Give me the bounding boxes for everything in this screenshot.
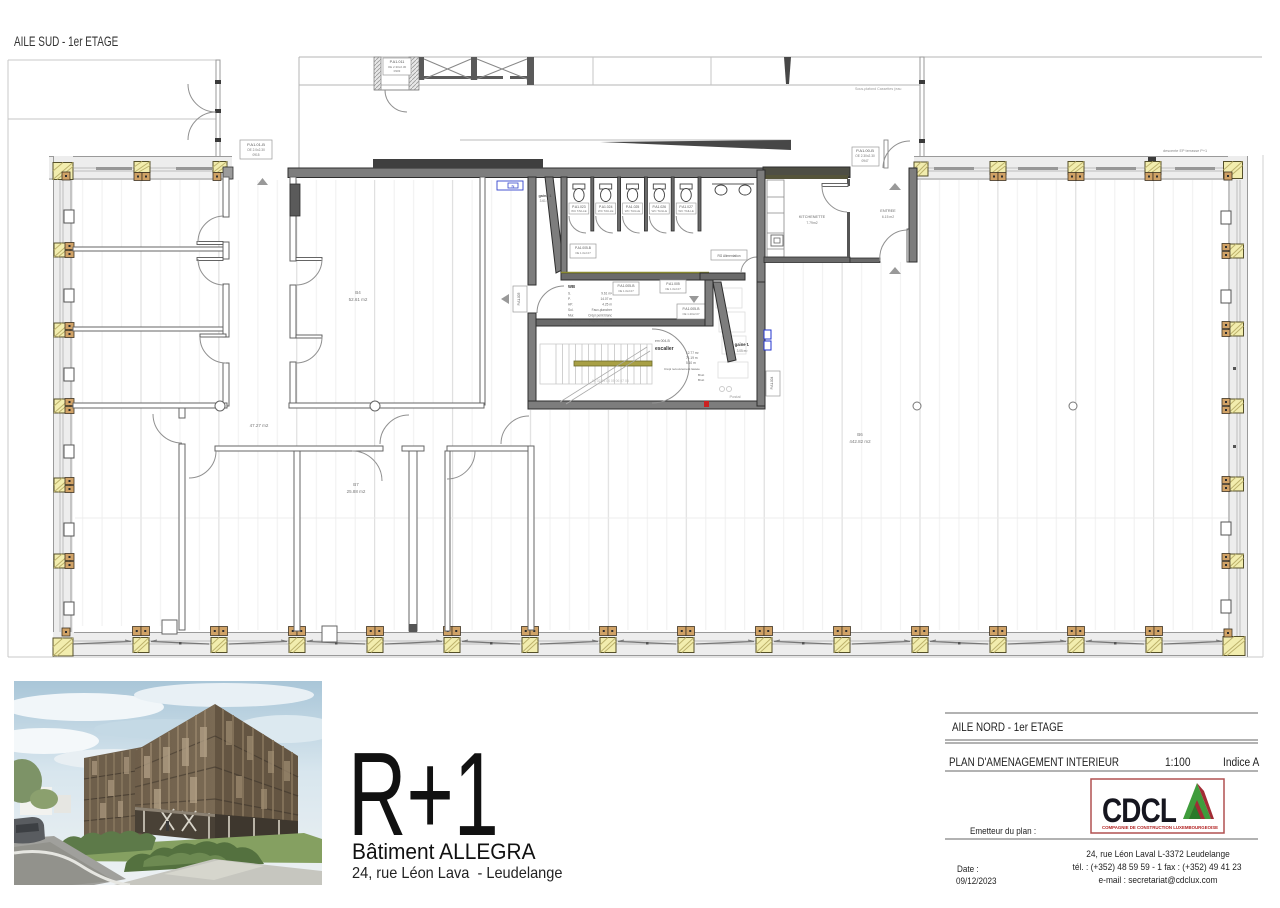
svg-text:442.82 m2: 442.82 m2 — [849, 439, 871, 444]
svg-text:Mur.: Mur. — [568, 314, 574, 318]
svg-text:descente EP terrasse P+1: descente EP terrasse P+1 — [1163, 149, 1207, 153]
svg-text:0947: 0947 — [861, 159, 868, 163]
svg-text:3.05 m²: 3.05 m² — [737, 349, 748, 353]
svg-text:HP.: HP. — [568, 303, 573, 307]
svg-text:Crépi recouvrement lassée: Crépi recouvrement lassée — [664, 367, 700, 371]
svg-text:Sous-plafond Cassettes (eau: Sous-plafond Cassettes (eau — [855, 87, 901, 91]
svg-text:Postal: Postal — [729, 394, 740, 399]
svg-text:P.A1.011: P.A1.011 — [390, 60, 405, 64]
svg-text:0903: 0903 — [394, 69, 401, 73]
svg-text:Date :: Date : — [957, 864, 979, 875]
svg-text:24, rue Léon Laval L-3372 Leud: 24, rue Léon Laval L-3372 Leudelange — [1086, 849, 1229, 860]
svg-text:OE 1.0x2.07: OE 1.0x2.07 — [618, 289, 634, 293]
svg-text:71.19 m: 71.19 m — [686, 356, 698, 360]
svg-text:RG Alimentation: RG Alimentation — [717, 254, 740, 258]
svg-text:OE 1.0x2.07: OE 1.0x2.07 — [575, 251, 591, 255]
svg-text:escalier: escalier — [655, 346, 674, 352]
svg-text:ENTREE: ENTREE — [880, 209, 896, 213]
svg-text:OE 1.20x2.07: OE 1.20x2.07 — [682, 312, 700, 316]
svg-text:25.88 m2: 25.88 m2 — [347, 489, 366, 494]
svg-text:HS. 2.70: HS. 2.70 — [568, 319, 581, 323]
svg-text:P.A1.005-B: P.A1.005-B — [618, 284, 636, 288]
svg-text:S.: S. — [568, 292, 571, 296]
svg-text:P.A1.005-B: P.A1.005-B — [683, 307, 701, 311]
svg-text:47.27 m2: 47.27 m2 — [250, 423, 269, 428]
svg-text:AILE NORD - 1er ETAGE: AILE NORD - 1er ETAGE — [952, 721, 1063, 734]
svg-text:0915: 0915 — [252, 153, 259, 157]
svg-text:KITCHENETTE: KITCHENETTE — [799, 215, 826, 219]
svg-text:N: N — [512, 184, 515, 189]
svg-text:Plaque de plâtre: Plaque de plâtre — [589, 319, 612, 323]
svg-text:WB: WB — [568, 284, 575, 289]
svg-text:e-mail : secretariat@cdclux.co: e-mail : secretariat@cdclux.com — [1099, 875, 1218, 886]
svg-text:4.25 m: 4.25 m — [602, 303, 612, 307]
svg-text:WC TAILLE: WC TAILLE — [625, 209, 641, 213]
svg-text:WC TAILLE: WC TAILLE — [652, 209, 668, 213]
svg-text:COMPAGNIE DE CONSTRUCTION LUXE: COMPAGNIE DE CONSTRUCTION LUXEMBOURGEOIS… — [1102, 825, 1218, 830]
svg-text:7.79m2: 7.79m2 — [806, 221, 817, 225]
svg-text:P.A1.005: P.A1.005 — [517, 292, 521, 305]
svg-text:em 004-B: em 004-B — [655, 339, 670, 343]
svg-text:P.A1.005: P.A1.005 — [666, 282, 680, 286]
svg-text:3.61 m²: 3.61 m² — [540, 199, 551, 203]
svg-text:WC TAILLE: WC TAILLE — [598, 209, 614, 213]
svg-text:B7: B7 — [353, 482, 359, 487]
svg-text:PLAN D'AMENAGEMENT INTERIEUR: PLAN D'AMENAGEMENT INTERIEUR — [949, 756, 1119, 769]
svg-text:P.A1.00-B: P.A1.00-B — [856, 148, 874, 153]
svg-text:OE 2.0x2.30: OE 2.0x2.30 — [247, 148, 265, 152]
svg-text:Crépi peint blanc: Crépi peint blanc — [588, 314, 612, 318]
svg-text:P.A1.005-B: P.A1.005-B — [575, 246, 591, 250]
svg-text:Faux-plancher: Faux-plancher — [592, 308, 613, 312]
svg-text:6.15 m2: 6.15 m2 — [882, 215, 894, 219]
svg-text:12.77 m²: 12.77 m² — [686, 351, 699, 355]
svg-text:OE 1.0x2.07: OE 1.0x2.07 — [665, 287, 681, 291]
svg-text:P.: P. — [568, 297, 571, 301]
svg-text:gaine t.: gaine t. — [735, 342, 750, 347]
svg-text:WC TAILLE: WC TAILLE — [678, 209, 694, 213]
svg-text:Sol.: Sol. — [568, 308, 574, 312]
svg-text:9.61 m²: 9.61 m² — [601, 292, 612, 296]
svg-text:OE 2.30x2.30: OE 2.30x2.30 — [855, 154, 875, 158]
svg-text:5.10 m: 5.10 m — [686, 361, 696, 365]
svg-text:09/12/2023: 09/12/2023 — [956, 876, 997, 887]
svg-text:B6: B6 — [857, 432, 863, 437]
svg-text:1:100: 1:100 — [1165, 756, 1191, 769]
svg-text:B4: B4 — [355, 290, 361, 295]
svg-text:Indice A: Indice A — [1223, 756, 1260, 769]
svg-text:14.07 m: 14.07 m — [600, 297, 612, 301]
svg-text:01 02 03 04 05 06 07 08: 01 02 03 04 05 06 07 08 — [592, 379, 629, 383]
svg-text:WC TAILLE: WC TAILLE — [571, 209, 587, 213]
svg-text:52.61 m2: 52.61 m2 — [349, 297, 368, 302]
svg-text:gaine 1: gaine 1 — [538, 194, 551, 198]
svg-text:tél. : (+352) 48 59 59 - 1 fax: tél. : (+352) 48 59 59 - 1 fax : (+352) … — [1073, 862, 1242, 873]
svg-text:P.A1.004: P.A1.004 — [770, 376, 774, 389]
svg-text:Emetteur du plan :: Emetteur du plan : — [970, 826, 1036, 837]
svg-text:Bruit: Bruit — [698, 378, 704, 382]
svg-text:P.A1.01-B: P.A1.01-B — [247, 142, 265, 147]
svg-text:Bruit: Bruit — [698, 373, 704, 377]
